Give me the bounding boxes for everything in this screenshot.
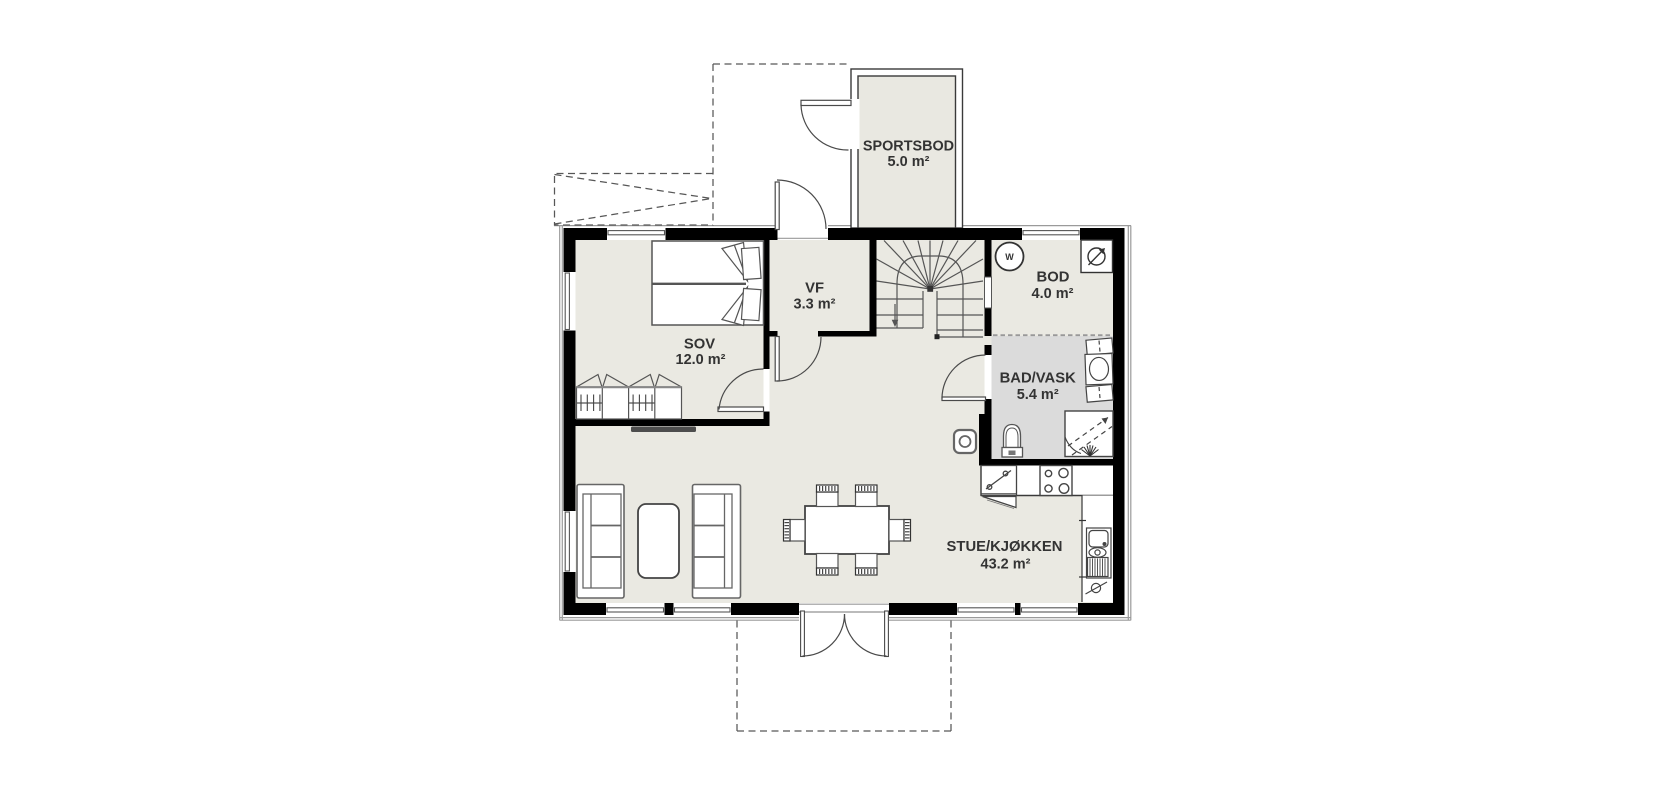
- svg-text:5.0 m²: 5.0 m²: [888, 154, 930, 170]
- svg-text:12.0 m²: 12.0 m²: [676, 352, 726, 368]
- svg-text:5.4 m²: 5.4 m²: [1017, 387, 1059, 403]
- svg-text:STUE/KJØKKEN: STUE/KJØKKEN: [947, 539, 1063, 555]
- svg-text:3.3 m²: 3.3 m²: [794, 297, 836, 313]
- svg-text:4.0 m²: 4.0 m²: [1032, 286, 1074, 302]
- svg-text:SOV: SOV: [684, 337, 715, 353]
- svg-text:BOD: BOD: [1037, 270, 1070, 286]
- svg-text:BAD/VASK: BAD/VASK: [1000, 371, 1076, 387]
- svg-text:43.2 m²: 43.2 m²: [981, 557, 1031, 573]
- svg-text:W: W: [1005, 252, 1014, 262]
- svg-text:SPORTSBOD: SPORTSBOD: [863, 139, 954, 155]
- svg-text:VF: VF: [805, 281, 824, 297]
